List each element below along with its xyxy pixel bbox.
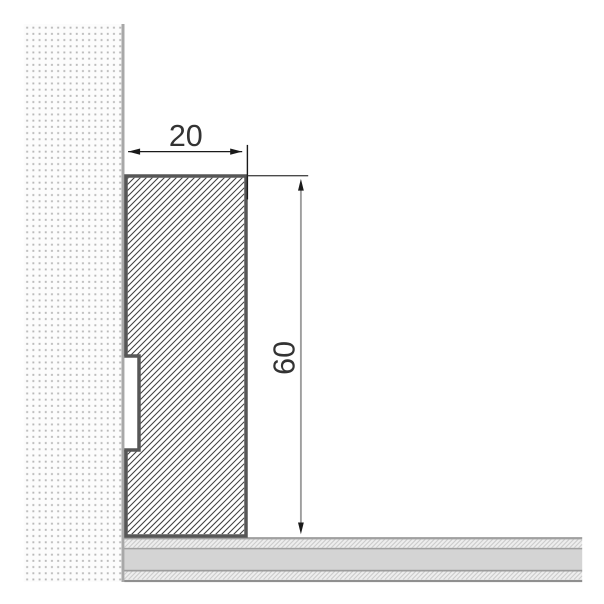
svg-text:60: 60 — [268, 341, 302, 375]
svg-text:20: 20 — [169, 119, 203, 153]
